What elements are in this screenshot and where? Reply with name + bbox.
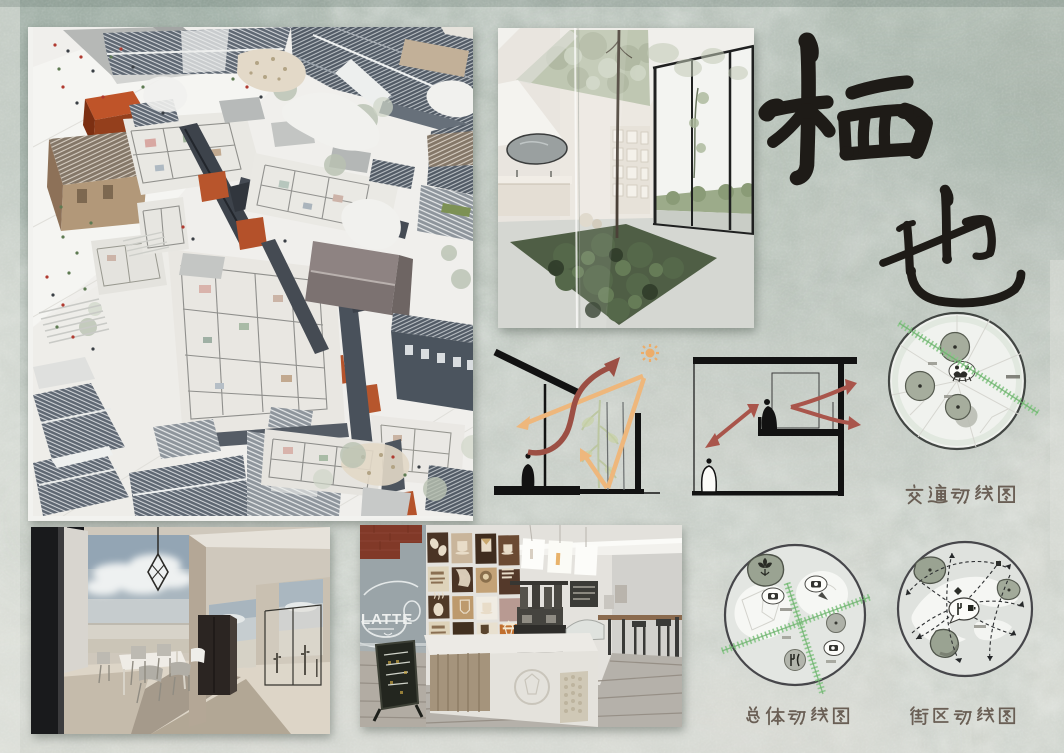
svg-text:LATTE: LATTE [361, 611, 413, 628]
